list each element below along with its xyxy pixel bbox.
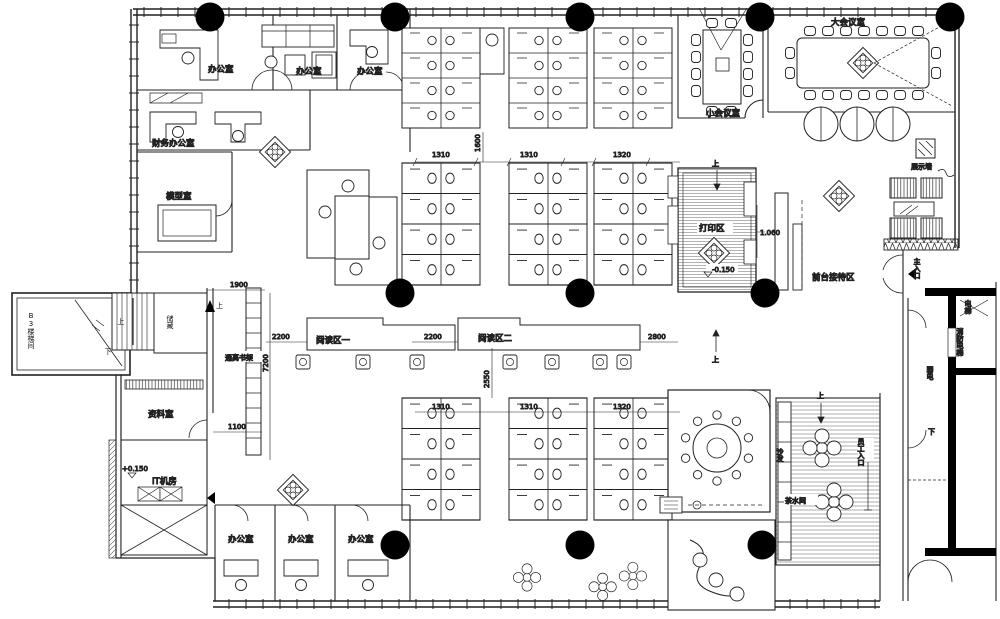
- deck-up-label: 上: [817, 391, 824, 400]
- print-platform: 上 打印区 -0.150 上: [668, 159, 756, 364]
- archive-room-label: 资料室: [148, 409, 174, 420]
- office3-desk: [350, 30, 388, 64]
- storage-room-label: 储藏: [166, 314, 174, 330]
- archive-it-block: 资料室 +0.150 IT机房: [121, 380, 215, 555]
- model-room: 模型室: [137, 152, 232, 252]
- sofa-label: 沙发: [776, 448, 784, 463]
- meeting-rooms: 小会议室 大会议室: [678, 8, 955, 141]
- dim-1310-top1: 1310: [432, 151, 450, 159]
- elevation-neg-text: -0.150: [712, 266, 735, 274]
- up-arrow-label: 上: [216, 301, 223, 310]
- office2-desk: [478, 28, 504, 74]
- dim-2550: 2550: [483, 370, 491, 388]
- fire-elevator-label: 消防电梯: [956, 327, 964, 357]
- dim-7200: 7200: [262, 354, 270, 372]
- b3-stairwell-label: B3楼梯间: [27, 312, 35, 350]
- stair-down-label: 下: [104, 348, 112, 356]
- tea-room-label: 茶水间: [785, 496, 806, 505]
- dim-1900: 1900: [230, 281, 248, 289]
- it-room-label: IT机房: [152, 476, 177, 487]
- stair-up-label: 上: [117, 317, 125, 325]
- elevator-label: 电梯: [964, 299, 972, 315]
- weak-power-label: 弱电: [926, 366, 934, 380]
- floor-plan-canvas: B3楼梯间 上 下 储藏 上: [0, 0, 1000, 619]
- finance-office-label: 财务办公室: [152, 138, 195, 149]
- round-tables-trio: [804, 107, 910, 141]
- down-label: 下: [928, 428, 935, 436]
- reception: 前台接待区: [775, 180, 855, 290]
- reception-area-label: 前台接待区: [812, 272, 855, 283]
- small-meeting-room-label: 小会议室: [706, 108, 741, 119]
- reading-area-2-label: 阅读区二: [478, 333, 513, 344]
- reading-area-1-label: 阅读区一: [316, 335, 351, 346]
- l-desk-group: [307, 170, 397, 285]
- platform-up-label: 上: [712, 159, 719, 168]
- lower-up-label: 上: [712, 355, 719, 364]
- model-room-label: 模型室: [166, 191, 192, 202]
- round-table-room: [660, 390, 770, 513]
- dim-1310-bot2: 1310: [520, 403, 538, 411]
- dim-1310-bot1: 1310: [432, 403, 450, 411]
- office-top1-label: 办公室: [208, 64, 234, 75]
- display-wall: 展示墙: [884, 139, 958, 250]
- dim-1320-bot: 1320: [613, 403, 631, 411]
- dim-1100: 1100: [228, 423, 246, 431]
- office-bottom1-label: 办公室: [228, 534, 254, 545]
- floor-plan-svg: B3楼梯间 上 下 储藏 上: [0, 0, 1000, 619]
- display-wall-label: 展示墙: [911, 162, 932, 171]
- dim-2200-a: 2200: [272, 333, 290, 341]
- stair-storage-block: 上 下 储藏 上: [104, 288, 223, 470]
- elevation-pos-text: +0.150: [122, 465, 148, 473]
- dim-2800: 2800: [648, 333, 666, 341]
- right-wing: 主入口 电梯 消防电梯 弱电 下: [880, 250, 996, 601]
- main-entrance-label: 主入口: [913, 257, 921, 279]
- office-bottom3-label: 办公室: [348, 534, 374, 545]
- office-top3-label: 办公室: [357, 66, 383, 77]
- dim-1060: 1.060: [760, 229, 780, 237]
- dim-1320-top: 1320: [613, 151, 631, 159]
- large-meeting-table: [786, 20, 953, 106]
- elevation-pos: +0.150: [122, 465, 148, 478]
- dim-1310-top2: 1310: [520, 151, 538, 159]
- open-office-clusters: [307, 28, 672, 520]
- staff-entrance-label: 员工入口: [857, 438, 865, 466]
- dim-1600: 1600: [474, 134, 482, 152]
- large-meeting-room-label: 大会议室: [831, 17, 866, 28]
- bottom-offices: 办公室 办公室 办公室: [215, 505, 410, 601]
- tall-bookshelf-label: 通高书架: [225, 353, 253, 362]
- office-top2-label: 办公室: [296, 66, 322, 77]
- reading-tables: 阅读区一 阅读区二: [296, 318, 640, 369]
- print-area-label: 打印区: [699, 223, 725, 234]
- dim-2200-b: 2200: [424, 333, 442, 341]
- office-bottom2-label: 办公室: [288, 534, 314, 545]
- small-meeting-table: [692, 8, 753, 116]
- finance-office: 财务办公室: [137, 90, 310, 150]
- tea-deck: 沙发 上 茶水间 员工入口: [776, 391, 880, 565]
